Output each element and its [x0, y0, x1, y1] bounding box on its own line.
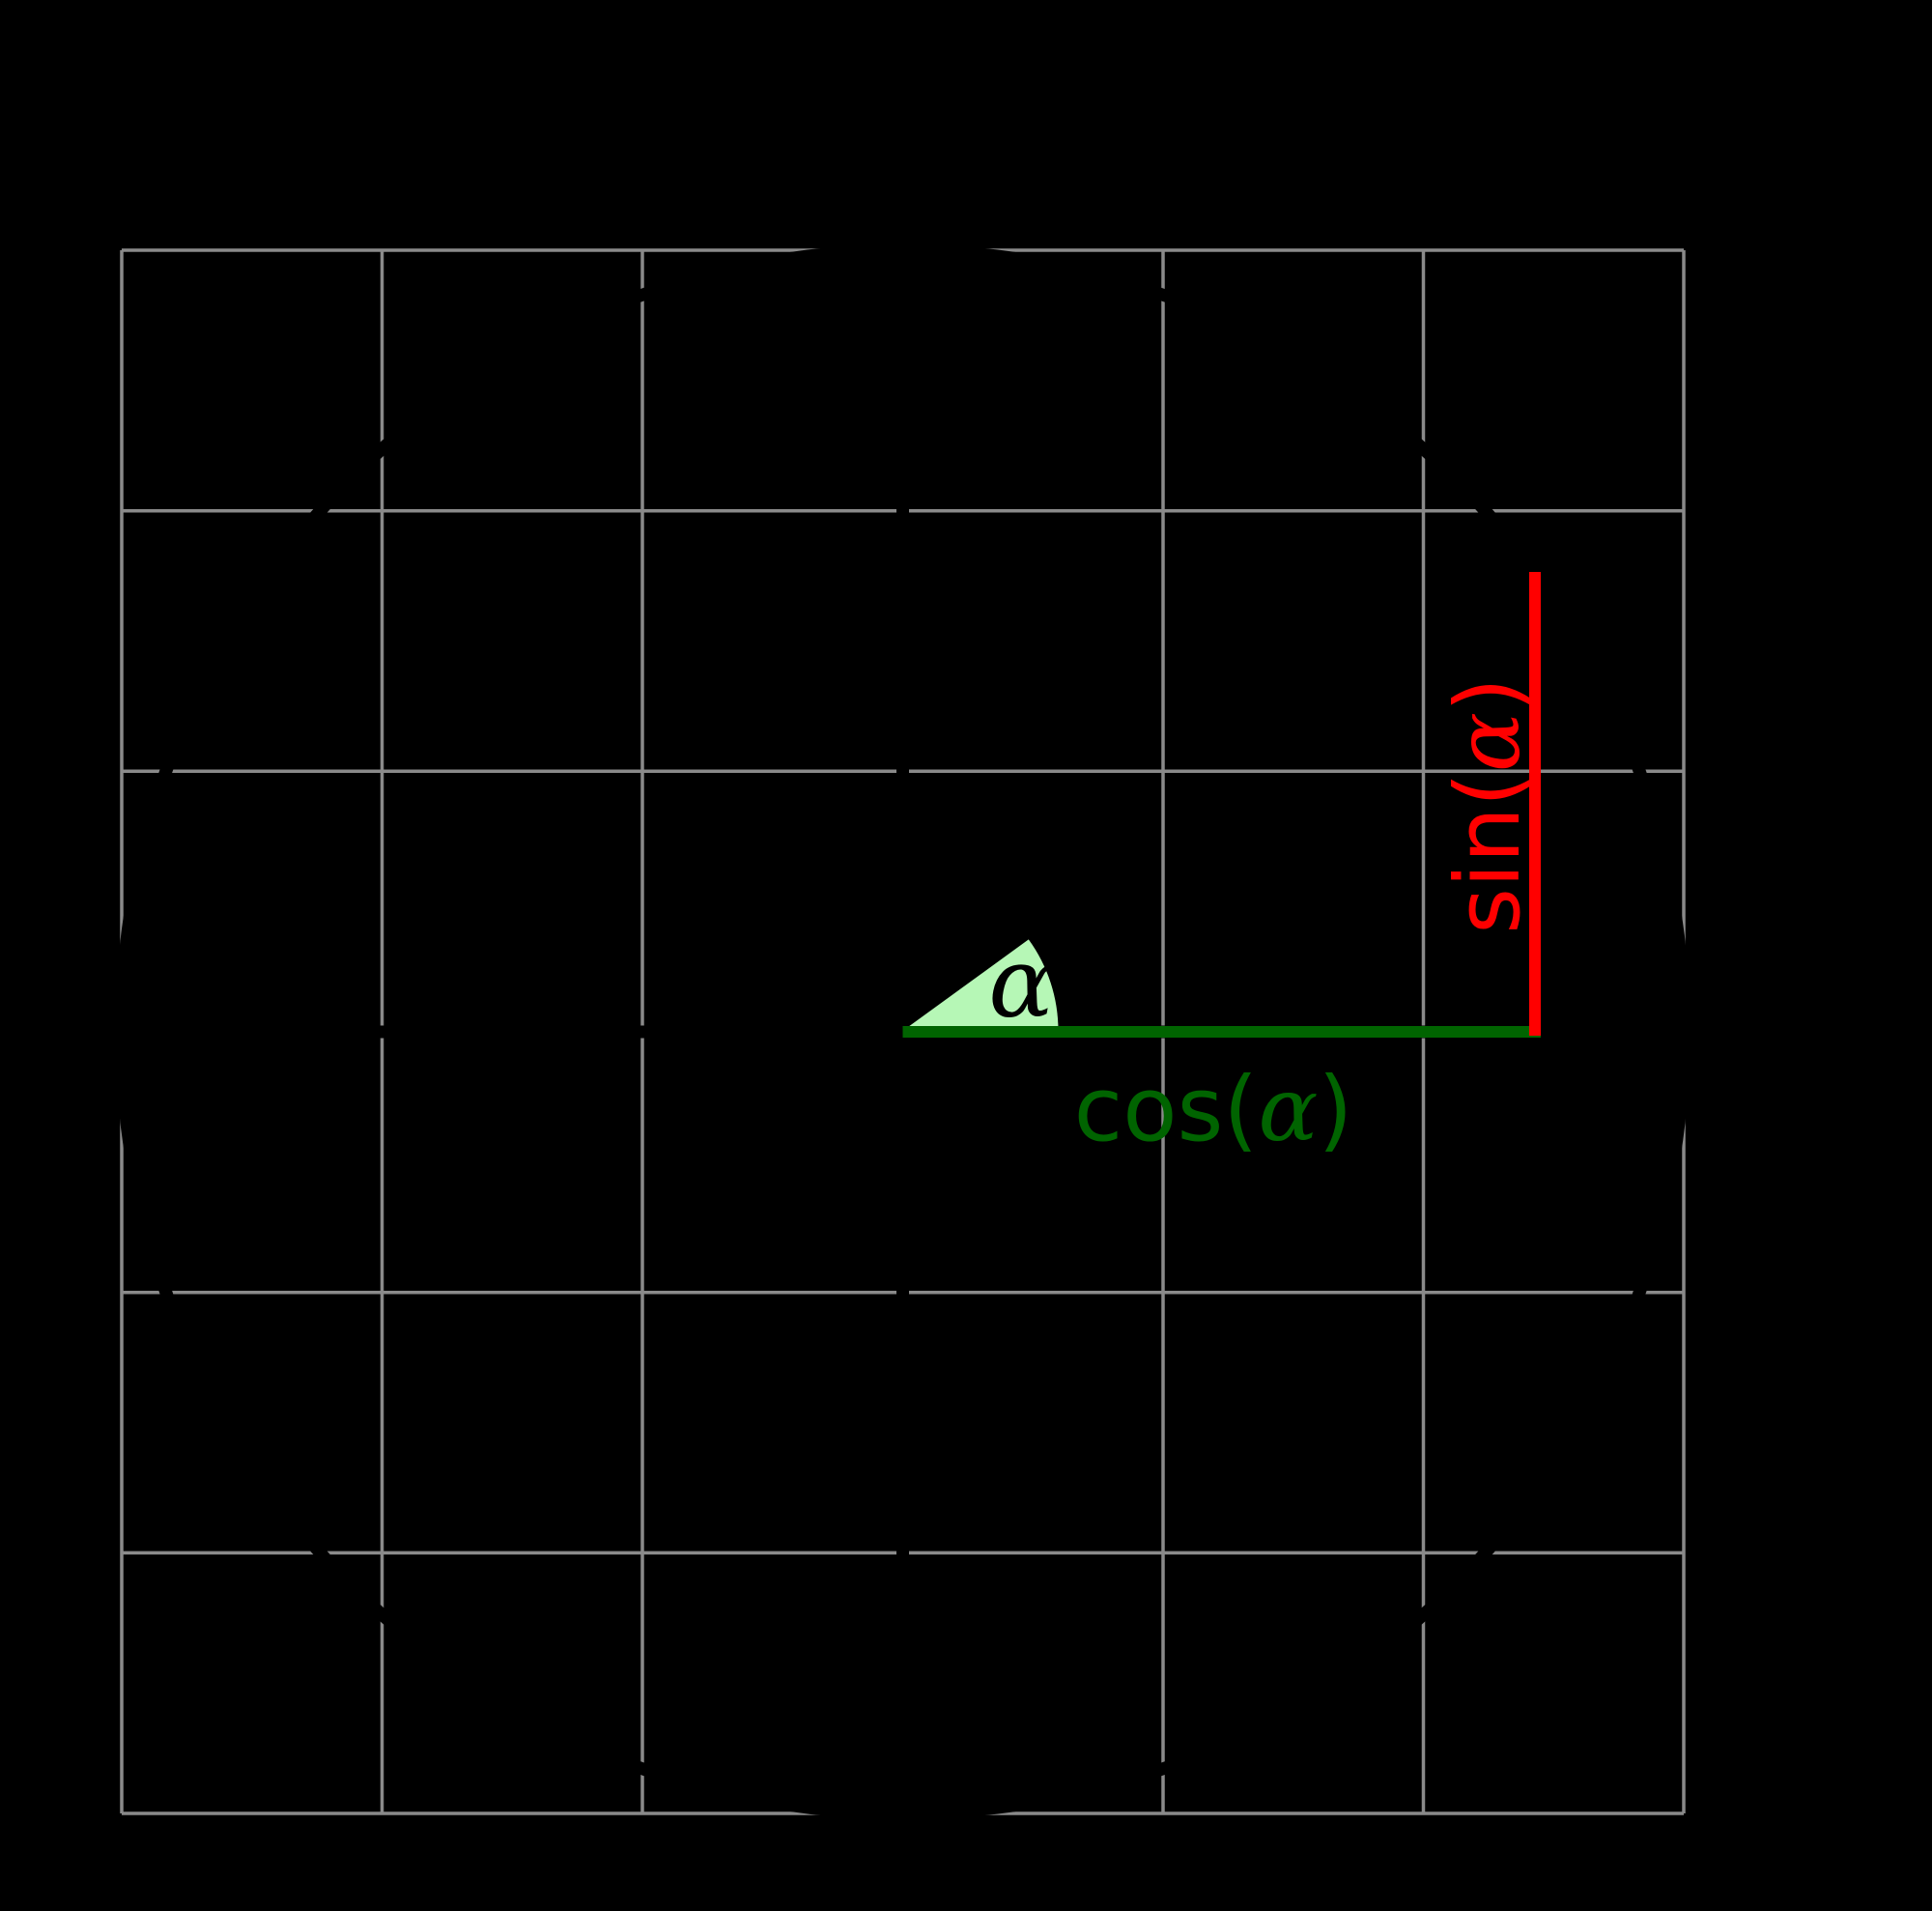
- cos-label-suffix: ): [1318, 1058, 1352, 1161]
- plot-background: [0, 0, 1932, 1911]
- cos-label: cos(α): [1074, 1058, 1353, 1161]
- plot-canvas: α cos(α) sin(α): [0, 0, 1932, 1911]
- unit-circle-plot: α cos(α) sin(α): [0, 0, 1932, 1911]
- alpha-angle-label: α: [988, 927, 1054, 1040]
- sin-label-alpha: α: [1436, 712, 1540, 772]
- sin-label-suffix: ): [1436, 677, 1540, 712]
- cos-label-alpha: α: [1258, 1058, 1318, 1161]
- cos-label-prefix: cos(: [1074, 1058, 1259, 1161]
- sin-label: sin(α): [1436, 677, 1540, 934]
- sin-label-prefix: sin(: [1436, 772, 1540, 934]
